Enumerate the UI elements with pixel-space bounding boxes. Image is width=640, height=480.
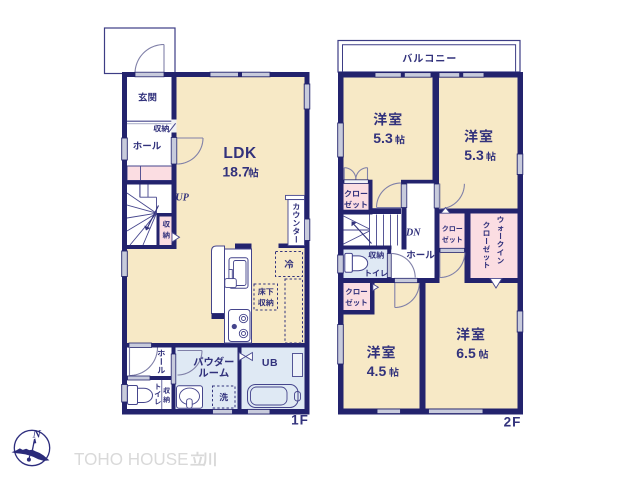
svg-text:5.3: 5.3: [373, 130, 393, 146]
svg-text:N: N: [32, 428, 42, 440]
svg-text:1F: 1F: [291, 412, 309, 427]
svg-text:UB: UB: [262, 357, 278, 369]
svg-text:6.5: 6.5: [456, 345, 476, 361]
svg-text:4.5: 4.5: [367, 363, 387, 379]
svg-text:DN: DN: [405, 228, 421, 239]
svg-text:18.7: 18.7: [222, 164, 249, 180]
svg-text:LDK: LDK: [223, 145, 257, 162]
svg-text:UP: UP: [176, 193, 190, 204]
svg-text:TOHO HOUSE: TOHO HOUSE: [74, 449, 189, 469]
svg-text:2F: 2F: [504, 414, 522, 429]
svg-text:5.3: 5.3: [464, 147, 484, 163]
